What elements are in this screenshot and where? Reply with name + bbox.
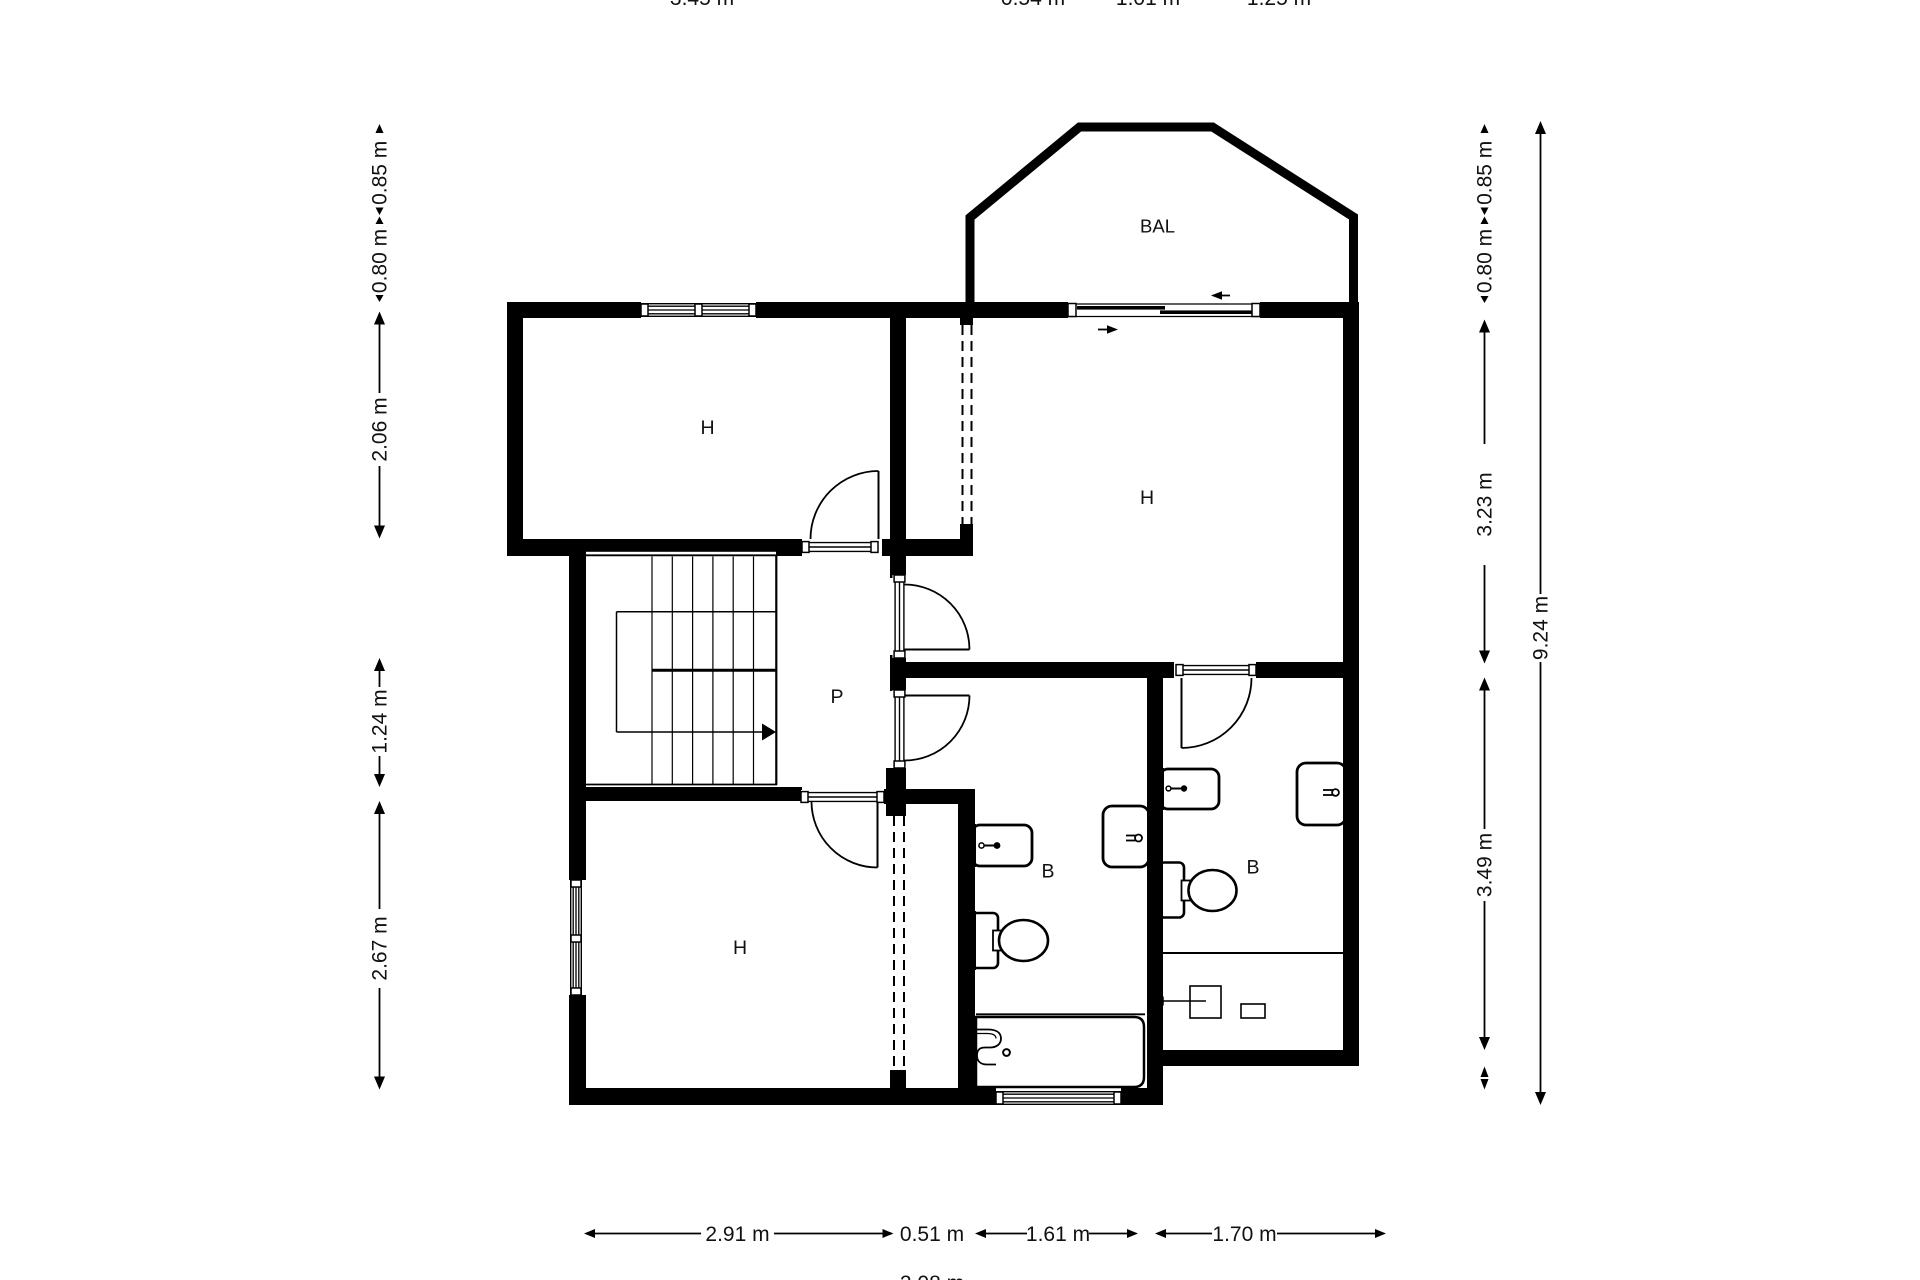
svg-text:1.61 m: 1.61 m: [1026, 1223, 1090, 1246]
svg-text:3.49 m: 3.49 m: [1474, 833, 1497, 897]
svg-text:B: B: [1246, 857, 1259, 879]
svg-text:2.67 m: 2.67 m: [369, 916, 392, 980]
svg-text:P: P: [830, 686, 843, 708]
svg-text:H: H: [733, 937, 747, 959]
svg-text:1.70 m: 1.70 m: [1212, 1223, 1276, 1246]
svg-text:3.23 m: 3.23 m: [1474, 472, 1497, 536]
svg-text:2.91 m: 2.91 m: [705, 1223, 769, 1246]
svg-text:3.45 m: 3.45 m: [670, 0, 734, 10]
svg-text:1.25 m: 1.25 m: [1247, 0, 1311, 10]
svg-text:0.85 m: 0.85 m: [1474, 141, 1497, 205]
svg-text:2.06 m: 2.06 m: [369, 397, 392, 461]
svg-text:0.80 m: 0.80 m: [369, 229, 392, 293]
svg-text:2.08 m: 2.08 m: [900, 1272, 964, 1280]
svg-text:BAL: BAL: [1140, 216, 1175, 237]
svg-text:0.54 m: 0.54 m: [1001, 0, 1065, 10]
svg-text:H: H: [700, 417, 714, 439]
svg-text:9.24 m: 9.24 m: [1530, 596, 1553, 660]
svg-text:1.01 m: 1.01 m: [1116, 0, 1180, 10]
svg-text:0.85 m: 0.85 m: [369, 141, 392, 205]
svg-text:0.80 m: 0.80 m: [1474, 229, 1497, 293]
svg-text:1.24 m: 1.24 m: [369, 689, 392, 753]
svg-text:B: B: [1041, 861, 1054, 883]
svg-text:H: H: [1140, 487, 1154, 509]
svg-text:0.51 m: 0.51 m: [900, 1223, 964, 1246]
